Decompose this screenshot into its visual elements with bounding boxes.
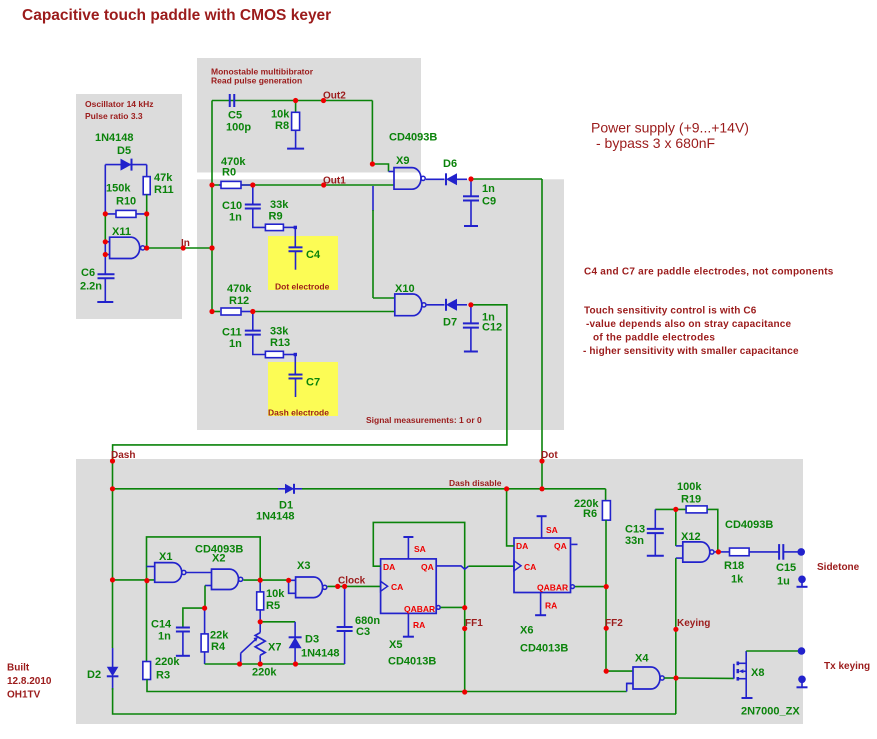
svg-text:DA: DA <box>516 541 528 551</box>
svg-text:Read pulse generation: Read pulse generation <box>211 76 302 86</box>
svg-text:1N4148: 1N4148 <box>256 511 295 523</box>
svg-text:1n: 1n <box>158 631 171 643</box>
svg-text:X9: X9 <box>396 155 409 167</box>
svg-text:R6: R6 <box>583 508 597 520</box>
svg-text:D2: D2 <box>87 669 101 681</box>
svg-text:CA: CA <box>524 562 536 572</box>
svg-text:1N4148: 1N4148 <box>301 648 340 660</box>
svg-text:C3: C3 <box>356 626 370 638</box>
svg-text:FF2: FF2 <box>605 618 623 629</box>
svg-text:R3: R3 <box>156 670 170 682</box>
svg-text:C9: C9 <box>482 196 496 208</box>
svg-text:R18: R18 <box>724 560 744 572</box>
svg-text:X6: X6 <box>520 625 533 637</box>
svg-text:Tx keying: Tx keying <box>824 661 870 672</box>
svg-text:FF1: FF1 <box>465 618 483 629</box>
svg-text:22k: 22k <box>210 630 229 642</box>
svg-text:In: In <box>181 238 190 249</box>
svg-text:Signal measurements: 1 or 0: Signal measurements: 1 or 0 <box>366 415 482 425</box>
svg-text:C5: C5 <box>228 110 242 122</box>
svg-text:R10: R10 <box>116 196 136 208</box>
svg-text:Touch sensitivity control is w: Touch sensitivity control is with C6 <box>584 306 757 317</box>
svg-text:CD4013B: CD4013B <box>520 643 568 655</box>
svg-text:C13: C13 <box>625 524 645 536</box>
svg-text:C4: C4 <box>306 249 321 261</box>
svg-text:C14: C14 <box>151 619 172 631</box>
svg-text:X7: X7 <box>268 642 281 654</box>
svg-text:X10: X10 <box>395 283 415 295</box>
svg-text:Dash electrode: Dash electrode <box>268 408 329 418</box>
svg-text:QABAR: QABAR <box>537 583 568 593</box>
svg-text:10k: 10k <box>266 588 285 600</box>
svg-text:X11: X11 <box>112 226 131 238</box>
svg-text:Dash: Dash <box>111 450 135 461</box>
svg-text:RA: RA <box>545 601 557 611</box>
svg-text:X3: X3 <box>297 560 310 572</box>
svg-text:220k: 220k <box>252 667 277 679</box>
svg-text:R0: R0 <box>222 167 236 179</box>
svg-text:1k: 1k <box>731 574 744 586</box>
svg-text:-value depends also on stray c: -value depends also on stray capacitance <box>586 319 792 330</box>
svg-text:R19: R19 <box>681 494 701 506</box>
svg-text:100k: 100k <box>677 481 702 493</box>
svg-text:Oscillator 14 kHz: Oscillator 14 kHz <box>85 99 154 109</box>
svg-text:1N4148: 1N4148 <box>95 132 134 144</box>
svg-text:Dot electrode: Dot electrode <box>275 282 330 292</box>
svg-text:Capacitive touch paddle with C: Capacitive touch paddle with CMOS keyer <box>22 7 331 24</box>
svg-text:150k: 150k <box>106 183 131 195</box>
svg-text:Clock: Clock <box>338 576 366 587</box>
svg-text:Dash disable: Dash disable <box>449 478 502 488</box>
svg-text:470k: 470k <box>227 283 252 295</box>
svg-text:SA: SA <box>414 544 426 554</box>
svg-text:QABAR: QABAR <box>404 604 435 614</box>
svg-text:2N7000_ZX: 2N7000_ZX <box>741 706 800 718</box>
svg-text:QA: QA <box>554 541 567 551</box>
svg-text:R13: R13 <box>270 337 290 349</box>
svg-text:X12: X12 <box>681 531 701 543</box>
svg-text:X4: X4 <box>635 653 649 665</box>
svg-text:Sidetone: Sidetone <box>817 562 860 573</box>
svg-text:OH1TV: OH1TV <box>7 690 41 701</box>
svg-text:1n: 1n <box>229 338 242 350</box>
svg-text:C10: C10 <box>222 200 242 212</box>
svg-text:Keying: Keying <box>677 618 710 629</box>
svg-text:R5: R5 <box>266 600 280 612</box>
svg-text:Built: Built <box>7 663 30 674</box>
svg-text:R11: R11 <box>154 184 174 196</box>
svg-text:of the paddle electrodes: of the paddle electrodes <box>593 333 715 344</box>
svg-text:RA: RA <box>413 620 425 630</box>
svg-text:2.2n: 2.2n <box>80 281 102 293</box>
svg-text:33k: 33k <box>270 326 289 338</box>
svg-text:Out1: Out1 <box>323 176 346 187</box>
svg-text:CD4093B: CD4093B <box>389 132 437 144</box>
svg-text:10k: 10k <box>271 109 290 121</box>
svg-text:1n: 1n <box>482 183 495 195</box>
svg-text:33k: 33k <box>270 199 289 211</box>
svg-text:CA: CA <box>391 582 403 592</box>
svg-text:C15: C15 <box>776 562 796 574</box>
svg-text:X8: X8 <box>751 667 764 679</box>
svg-text:R4: R4 <box>211 641 226 653</box>
svg-text:D6: D6 <box>443 158 457 170</box>
svg-text:D3: D3 <box>305 634 319 646</box>
svg-text:1u: 1u <box>777 576 790 588</box>
svg-text:QA: QA <box>421 562 434 572</box>
svg-text:R8: R8 <box>275 120 289 132</box>
svg-text:- higher sensitivity with smal: - higher sensitivity with smaller capaci… <box>583 346 799 357</box>
svg-text:Power supply (+9...+14V): Power supply (+9...+14V) <box>591 120 749 136</box>
svg-text:47k: 47k <box>154 172 173 184</box>
svg-text:Pulse ratio 3.3: Pulse ratio 3.3 <box>85 111 143 121</box>
svg-text:C7: C7 <box>306 377 320 389</box>
svg-text:X2: X2 <box>212 553 225 565</box>
svg-text:CD4093B: CD4093B <box>725 519 773 531</box>
svg-text:R12: R12 <box>229 295 249 307</box>
svg-text:X5: X5 <box>389 639 402 651</box>
svg-text:C12: C12 <box>482 322 502 334</box>
svg-text:SA: SA <box>546 525 558 535</box>
svg-text:100p: 100p <box>226 122 251 134</box>
svg-text:D7: D7 <box>443 317 457 329</box>
svg-text:C6: C6 <box>81 267 95 279</box>
svg-text:220k: 220k <box>155 656 180 668</box>
svg-text:Out2: Out2 <box>323 91 346 102</box>
svg-text:X1: X1 <box>159 551 172 563</box>
svg-text:- bypass 3 x 680nF: - bypass 3 x 680nF <box>596 135 715 151</box>
svg-text:33n: 33n <box>625 535 644 547</box>
svg-text:C4 and C7 are paddle electrode: C4 and C7 are paddle electrodes, not com… <box>584 267 834 278</box>
svg-text:1n: 1n <box>229 212 242 224</box>
svg-text:D5: D5 <box>117 145 131 157</box>
svg-text:Dot: Dot <box>541 450 558 461</box>
svg-text:CD4013B: CD4013B <box>388 656 436 668</box>
svg-text:C11: C11 <box>222 327 242 339</box>
svg-text:12.8.2010: 12.8.2010 <box>7 676 52 687</box>
svg-text:R9: R9 <box>269 211 283 223</box>
svg-text:DA: DA <box>383 562 395 572</box>
